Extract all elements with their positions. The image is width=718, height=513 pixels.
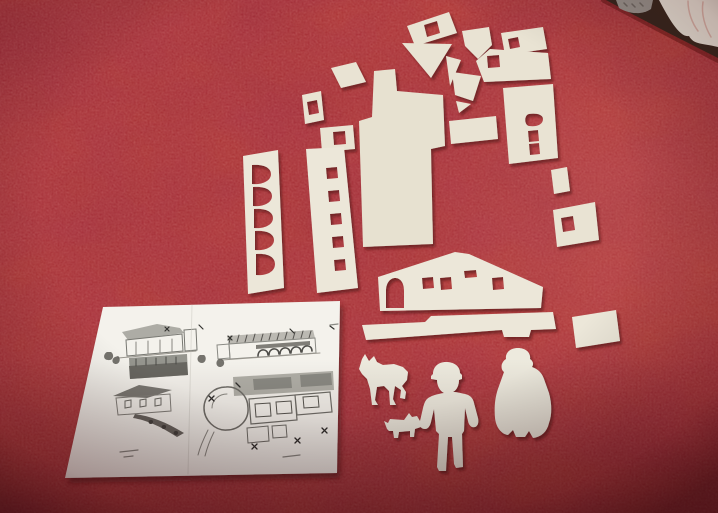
photo-paper-model-cutouts bbox=[0, 0, 718, 513]
bottom-shade bbox=[0, 0, 718, 513]
photo-canvas bbox=[0, 0, 718, 513]
